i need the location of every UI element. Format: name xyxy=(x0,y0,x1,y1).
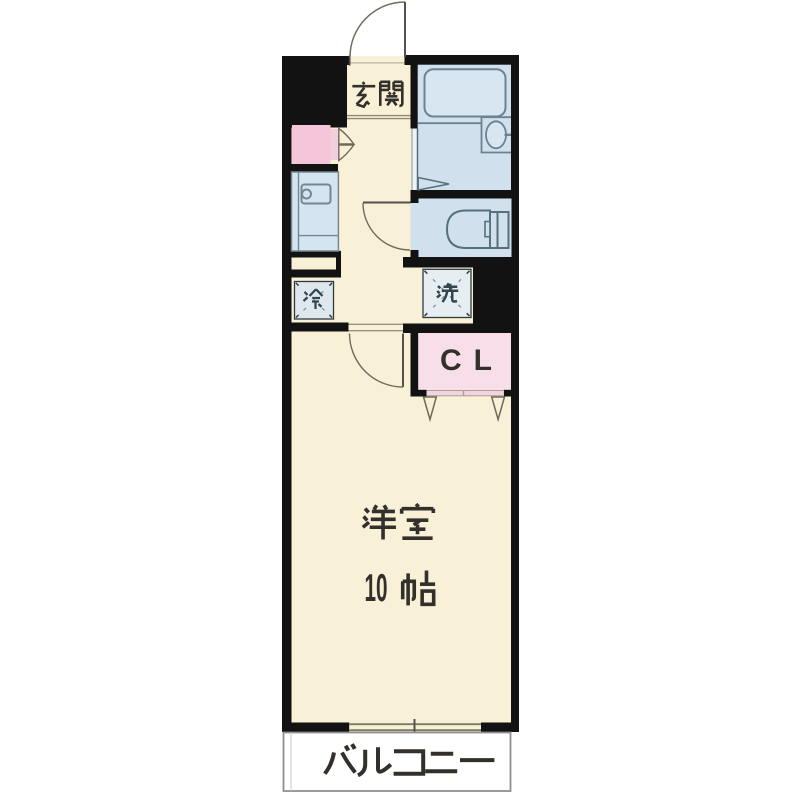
svg-text:10: 10 xyxy=(365,567,388,610)
svg-text:CL: CL xyxy=(440,344,504,377)
